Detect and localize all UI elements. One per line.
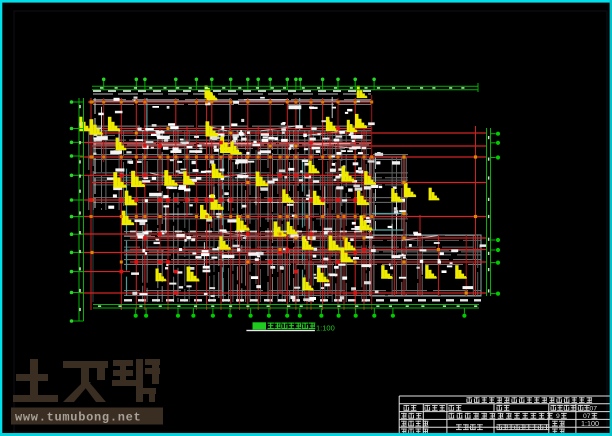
svg-text:1:100: 1:100	[316, 324, 335, 333]
svg-text:07: 07	[590, 405, 598, 412]
svg-text:9: 9	[556, 413, 560, 420]
svg-text:www.tumubong.net: www.tumubong.net	[15, 411, 141, 425]
svg-text:1:100: 1:100	[581, 419, 599, 428]
